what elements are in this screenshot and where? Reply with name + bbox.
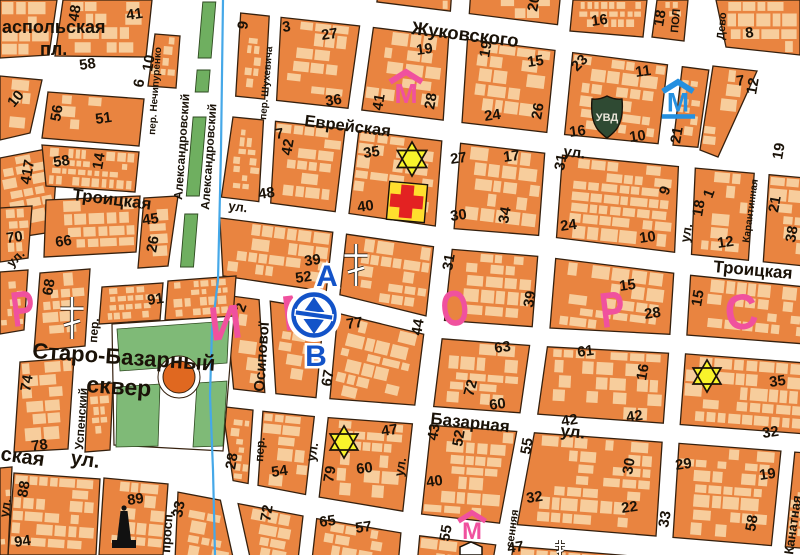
svg-text:А: А xyxy=(316,260,338,293)
svg-text:43: 43 xyxy=(425,423,444,442)
svg-text:пл.: пл. xyxy=(40,39,67,59)
svg-text:27: 27 xyxy=(320,26,339,44)
svg-text:89: 89 xyxy=(126,491,145,509)
svg-text:24: 24 xyxy=(483,107,502,125)
svg-text:10: 10 xyxy=(628,128,647,146)
svg-text:пер.: пер. xyxy=(86,318,102,344)
svg-text:24: 24 xyxy=(559,217,578,235)
svg-text:55: 55 xyxy=(518,437,537,456)
svg-text:30: 30 xyxy=(449,207,468,225)
svg-text:29: 29 xyxy=(674,456,693,474)
svg-text:ул.: ул. xyxy=(228,198,249,215)
svg-text:УВД: УВД xyxy=(596,112,619,124)
svg-text:40: 40 xyxy=(425,473,444,491)
svg-text:48: 48 xyxy=(66,4,85,23)
svg-text:18: 18 xyxy=(651,9,670,28)
svg-text:36: 36 xyxy=(324,92,343,110)
svg-text:В: В xyxy=(305,340,327,373)
svg-text:27: 27 xyxy=(449,150,468,168)
svg-text:31: 31 xyxy=(552,153,571,172)
svg-text:19: 19 xyxy=(770,142,789,161)
svg-text:32: 32 xyxy=(761,424,780,442)
svg-text:21: 21 xyxy=(668,126,687,145)
svg-text:С: С xyxy=(722,282,762,342)
svg-text:М: М xyxy=(394,78,417,109)
svg-text:94: 94 xyxy=(13,533,32,551)
svg-text:11: 11 xyxy=(634,63,652,81)
svg-text:17: 17 xyxy=(502,148,521,166)
svg-text:15: 15 xyxy=(526,53,545,71)
svg-text:77: 77 xyxy=(345,315,364,333)
svg-text:63: 63 xyxy=(493,339,512,357)
svg-text:28: 28 xyxy=(223,452,242,471)
svg-text:48: 48 xyxy=(257,185,276,203)
svg-text:ПОЛ: ПОЛ xyxy=(669,8,683,33)
svg-text:54: 54 xyxy=(270,463,289,481)
svg-text:аспольская: аспольская xyxy=(2,17,105,37)
svg-text:21: 21 xyxy=(766,195,785,214)
svg-text:60: 60 xyxy=(355,460,374,478)
svg-text:10: 10 xyxy=(638,229,657,247)
svg-text:58: 58 xyxy=(743,514,762,533)
svg-text:58: 58 xyxy=(78,56,97,74)
svg-text:26: 26 xyxy=(144,235,163,254)
svg-text:19: 19 xyxy=(758,466,777,484)
svg-text:52: 52 xyxy=(450,429,469,448)
svg-text:сквер: сквер xyxy=(86,371,153,401)
svg-text:47: 47 xyxy=(380,422,399,440)
svg-text:45: 45 xyxy=(141,211,160,229)
svg-text:12: 12 xyxy=(744,77,763,96)
svg-text:56: 56 xyxy=(48,104,67,123)
svg-text:42: 42 xyxy=(625,408,644,426)
svg-text:41: 41 xyxy=(125,6,144,24)
svg-text:30: 30 xyxy=(620,457,639,476)
svg-text:66: 66 xyxy=(54,233,73,251)
svg-text:60: 60 xyxy=(488,396,507,414)
svg-text:38: 38 xyxy=(783,225,800,244)
svg-text:19: 19 xyxy=(477,40,496,59)
svg-text:68: 68 xyxy=(40,278,59,297)
svg-text:22: 22 xyxy=(620,499,639,517)
svg-text:31: 31 xyxy=(440,253,459,272)
svg-text:42: 42 xyxy=(279,138,298,157)
svg-text:40: 40 xyxy=(356,198,375,216)
svg-text:88: 88 xyxy=(15,480,34,499)
svg-text:78: 78 xyxy=(30,437,49,455)
svg-text:10: 10 xyxy=(140,54,159,73)
svg-text:28: 28 xyxy=(643,305,662,323)
svg-text:Дево: Дево xyxy=(715,12,729,41)
svg-text:61: 61 xyxy=(576,343,595,361)
svg-text:47: 47 xyxy=(506,539,525,555)
svg-text:28: 28 xyxy=(422,92,441,111)
svg-text:57: 57 xyxy=(354,519,373,537)
svg-text:33: 33 xyxy=(656,510,675,529)
svg-text:70: 70 xyxy=(5,229,24,247)
svg-text:35: 35 xyxy=(362,144,381,162)
svg-text:91: 91 xyxy=(146,291,165,309)
svg-text:18: 18 xyxy=(690,199,709,218)
svg-text:32: 32 xyxy=(525,489,544,507)
svg-text:15: 15 xyxy=(689,289,708,308)
svg-text:33: 33 xyxy=(170,500,189,519)
svg-text:16: 16 xyxy=(590,12,609,30)
svg-text:19: 19 xyxy=(415,41,434,59)
svg-text:55: 55 xyxy=(437,524,456,543)
svg-text:И: И xyxy=(206,295,245,352)
svg-text:41: 41 xyxy=(370,93,389,112)
svg-text:39: 39 xyxy=(521,290,540,309)
svg-text:35: 35 xyxy=(768,373,787,391)
svg-text:12: 12 xyxy=(716,234,735,252)
svg-text:72: 72 xyxy=(258,504,277,523)
svg-text:пер.: пер. xyxy=(252,437,268,463)
svg-text:16: 16 xyxy=(568,123,587,141)
svg-text:51: 51 xyxy=(94,110,113,128)
svg-text:М: М xyxy=(462,518,482,545)
svg-text:42: 42 xyxy=(560,412,579,430)
svg-text:79: 79 xyxy=(321,465,340,484)
svg-text:58: 58 xyxy=(52,153,71,171)
svg-text:26: 26 xyxy=(529,102,548,121)
svg-text:М: М xyxy=(667,87,689,117)
svg-text:16: 16 xyxy=(634,363,653,382)
svg-text:65: 65 xyxy=(318,513,337,531)
svg-text:20: 20 xyxy=(525,0,544,13)
